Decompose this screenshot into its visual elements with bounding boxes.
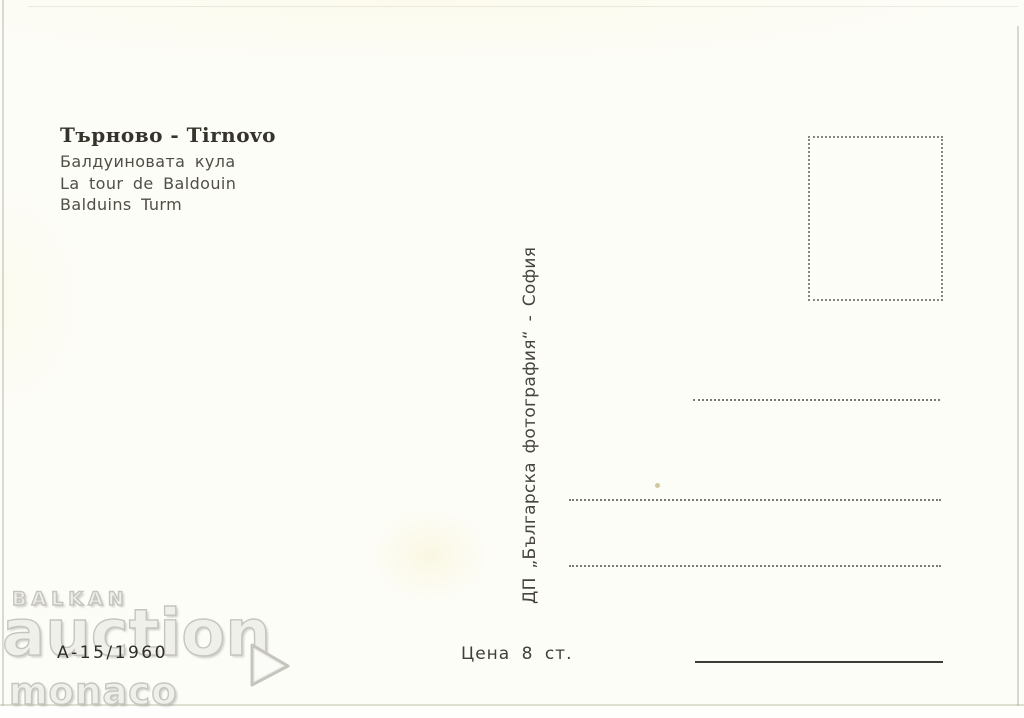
paper-speck xyxy=(655,483,660,488)
caption-bulgarian: Балдуиновата кула xyxy=(60,151,276,173)
card-edge-left xyxy=(2,0,4,706)
place-title: Търново - Tirnovo xyxy=(60,122,276,148)
watermark-arrow-icon xyxy=(246,641,294,689)
address-dotted-line-1 xyxy=(693,399,940,401)
catalog-number: А-15/1960 xyxy=(57,643,168,663)
scan-background xyxy=(0,706,1024,718)
postcard-back: Търново - Tirnovo Балдуиновата кула La t… xyxy=(0,0,1024,718)
caption-block: Търново - Tirnovo Балдуиновата кула La t… xyxy=(60,122,276,216)
card-edge-top xyxy=(28,6,1018,7)
publisher-vertical-imprint: ДП „Българска фотография“ - София xyxy=(520,247,540,604)
caption-german: Balduins Turm xyxy=(60,194,276,216)
address-dotted-line-2 xyxy=(569,499,941,501)
bottom-rule-line xyxy=(695,661,943,663)
caption-french: La tour de Baldouin xyxy=(60,173,276,195)
watermark-balkan: BALKAN xyxy=(12,588,129,610)
stamp-placeholder-box xyxy=(808,136,943,301)
price-label: Цена 8 ст. xyxy=(461,644,572,664)
card-edge-right xyxy=(1017,26,1019,706)
address-dotted-line-3 xyxy=(569,565,941,567)
